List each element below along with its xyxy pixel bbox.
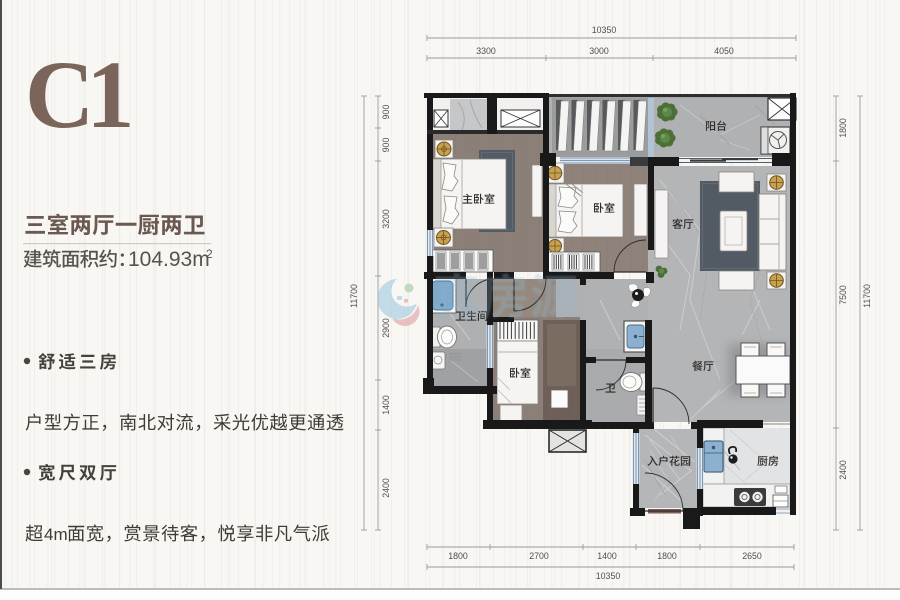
svg-text:3300: 3300 — [476, 46, 496, 56]
svg-text:2: 2 — [206, 247, 213, 261]
svg-text:4m: 4m — [44, 525, 68, 544]
svg-text:2900: 2900 — [381, 318, 391, 338]
svg-text:3200: 3200 — [381, 209, 391, 229]
svg-text:900: 900 — [381, 138, 391, 153]
svg-text:10350: 10350 — [596, 571, 621, 581]
svg-text:104.93m: 104.93m — [128, 248, 210, 271]
svg-text:C1: C1 — [25, 41, 130, 148]
svg-text:1800: 1800 — [657, 551, 677, 561]
svg-text:11700: 11700 — [862, 284, 872, 308]
svg-text:11700: 11700 — [349, 284, 359, 308]
svg-text:2400: 2400 — [381, 478, 391, 498]
svg-text:4050: 4050 — [714, 46, 734, 56]
svg-text:1800: 1800 — [448, 551, 468, 561]
svg-text:1400: 1400 — [381, 395, 391, 415]
svg-text:1400: 1400 — [597, 551, 617, 561]
svg-text:900: 900 — [381, 105, 391, 120]
svg-text:1800: 1800 — [838, 118, 848, 138]
svg-text:10350: 10350 — [592, 25, 617, 35]
svg-text:7500: 7500 — [838, 285, 848, 305]
svg-text:3000: 3000 — [589, 46, 609, 56]
svg-text:2400: 2400 — [838, 460, 848, 480]
svg-text:2650: 2650 — [742, 551, 762, 561]
svg-text:2700: 2700 — [529, 551, 549, 561]
